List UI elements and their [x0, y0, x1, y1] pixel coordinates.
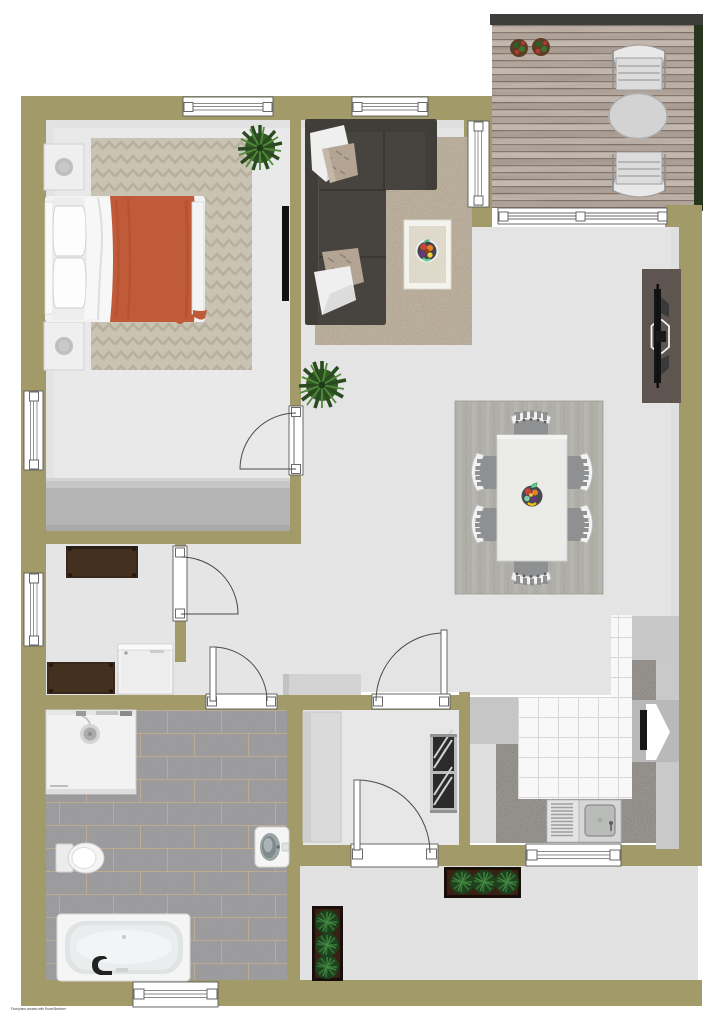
- svg-text:Floorplans created with RoomSk: Floorplans created with RoomSketcher: [11, 1007, 67, 1011]
